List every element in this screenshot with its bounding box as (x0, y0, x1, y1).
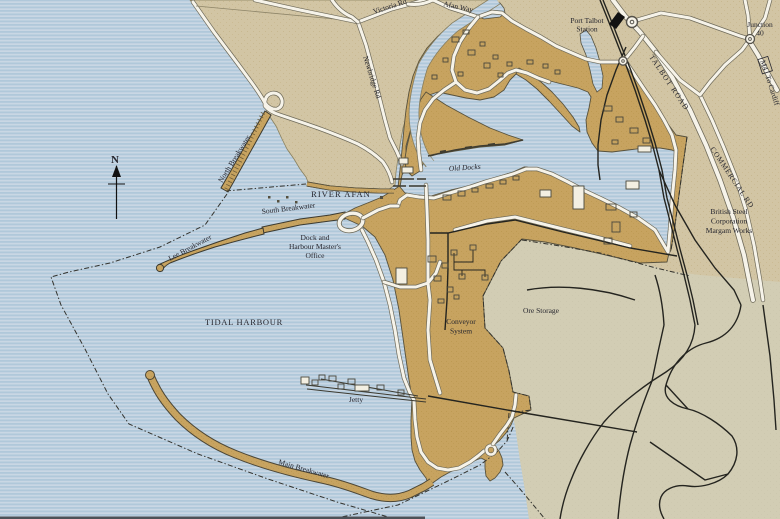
svg-text:Jetty: Jetty (349, 395, 363, 404)
svg-text:40: 40 (756, 29, 764, 38)
svg-text:TIDAL HARBOUR: TIDAL HARBOUR (205, 317, 283, 327)
svg-text:British Steel: British Steel (710, 207, 747, 216)
svg-text:Corporation: Corporation (711, 217, 747, 226)
svg-text:System: System (450, 327, 472, 336)
svg-text:Conveyor: Conveyor (446, 317, 476, 326)
svg-text:Margam Works: Margam Works (706, 226, 752, 235)
svg-text:N: N (111, 154, 119, 166)
svg-text:RIVER AFAN: RIVER AFAN (311, 189, 371, 199)
svg-text:Station: Station (576, 25, 598, 34)
svg-text:Ore Storage: Ore Storage (523, 306, 560, 315)
svg-text:Dock and: Dock and (301, 233, 330, 242)
svg-text:Office: Office (305, 251, 325, 260)
svg-text:Harbour Master's: Harbour Master's (289, 242, 341, 251)
